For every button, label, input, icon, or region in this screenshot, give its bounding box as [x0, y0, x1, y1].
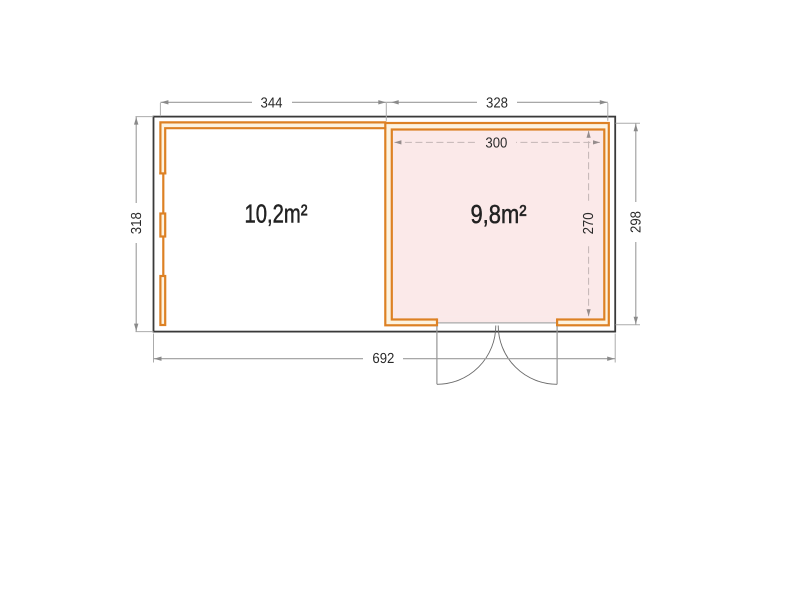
- svg-text:692: 692: [372, 351, 394, 367]
- svg-text:300: 300: [485, 136, 507, 152]
- svg-text:328: 328: [486, 96, 508, 112]
- svg-text:9,8m²: 9,8m²: [471, 199, 527, 229]
- svg-text:344: 344: [261, 96, 283, 112]
- svg-text:10,2m²: 10,2m²: [245, 199, 308, 229]
- svg-text:298: 298: [628, 211, 644, 233]
- svg-text:318: 318: [129, 212, 145, 234]
- svg-text:270: 270: [581, 212, 597, 234]
